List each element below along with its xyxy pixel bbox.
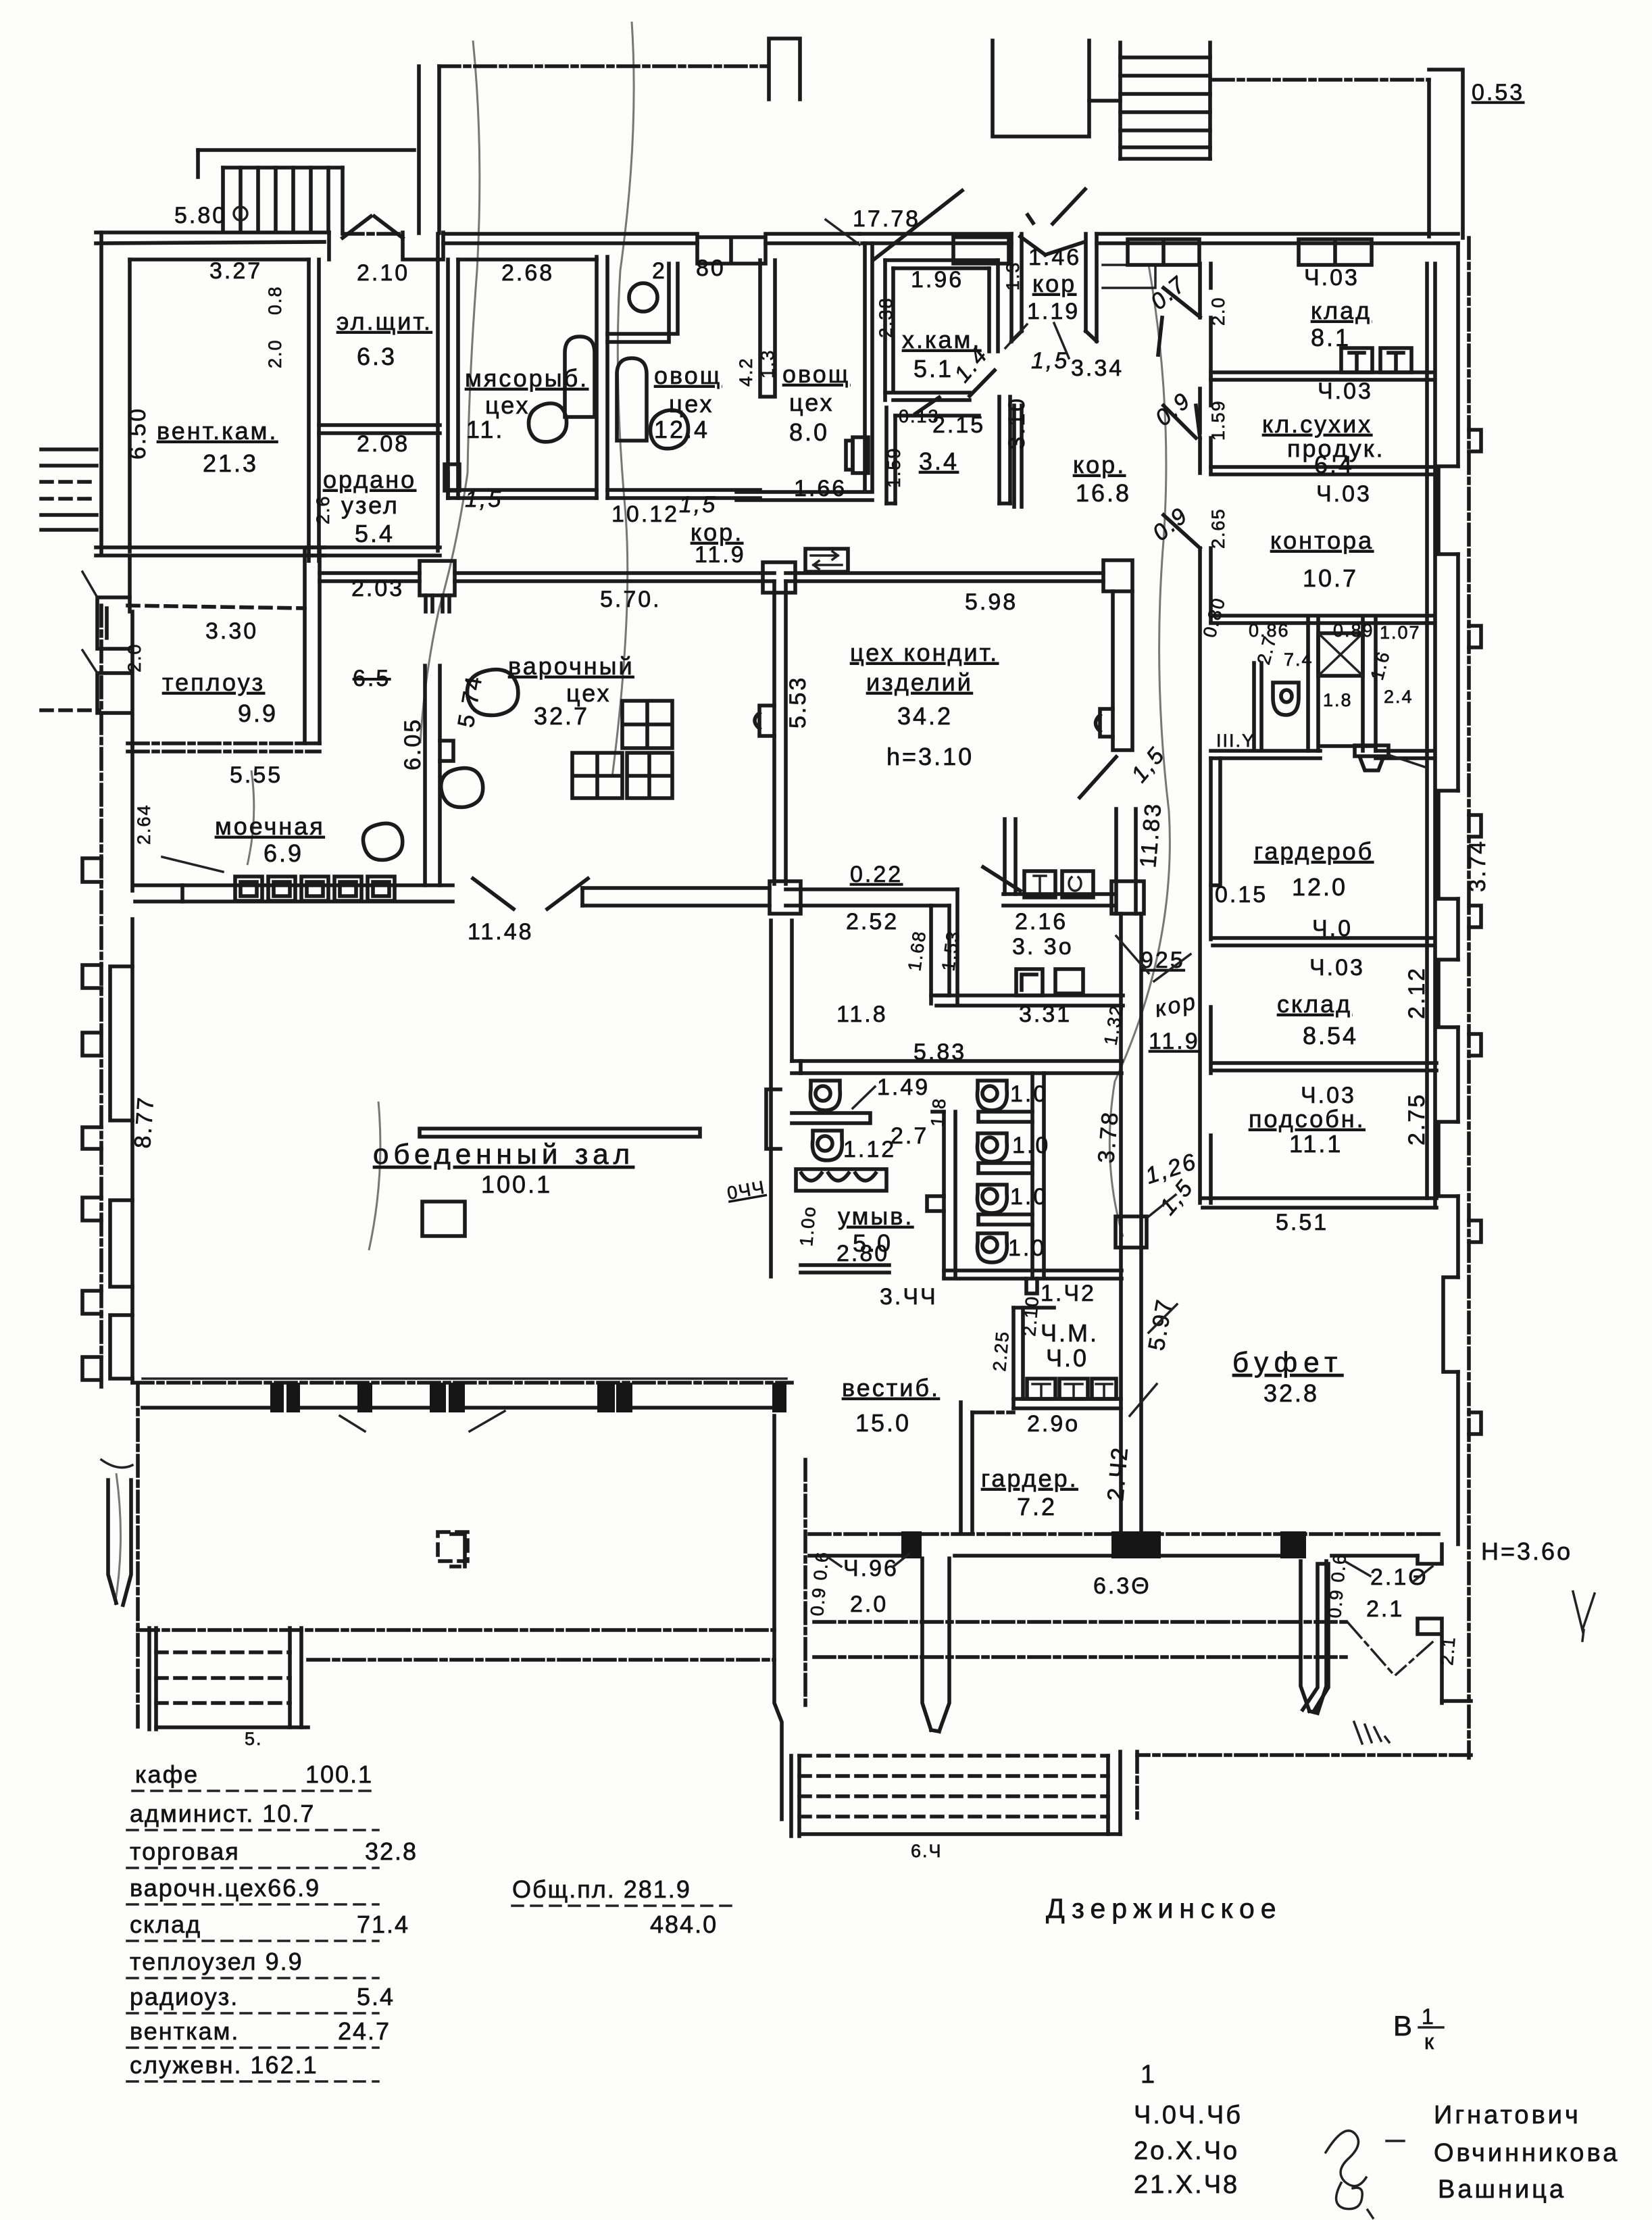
svg-text:торговая: торговая bbox=[130, 1837, 240, 1865]
svg-text:к: к bbox=[1424, 2029, 1434, 2054]
svg-text:3.34: 3.34 bbox=[1071, 355, 1124, 381]
svg-text:3.31: 3.31 bbox=[1019, 1002, 1072, 1027]
svg-text:5.4: 5.4 bbox=[355, 520, 395, 547]
svg-text:11.: 11. bbox=[466, 416, 504, 443]
svg-text:гардер.: гардер. bbox=[981, 1464, 1078, 1492]
svg-text:32.8: 32.8 bbox=[365, 1837, 418, 1865]
svg-text:овощ: овощ bbox=[782, 360, 850, 388]
svg-text:вент.кам.: вент.кам. bbox=[157, 417, 278, 445]
svg-text:1.07: 1.07 bbox=[1380, 622, 1421, 643]
svg-text:3.74: 3.74 bbox=[1465, 839, 1491, 892]
svg-text:1.0: 1.0 bbox=[1010, 1081, 1048, 1107]
svg-text:8.0: 8.0 bbox=[789, 418, 829, 446]
svg-text:кл.сухих: кл.сухих bbox=[1262, 410, 1372, 438]
svg-text:3.27: 3.27 bbox=[209, 258, 262, 284]
svg-text:1.59: 1.59 bbox=[884, 447, 904, 488]
svg-text:моечная: моечная bbox=[215, 812, 325, 840]
svg-text:2.10: 2.10 bbox=[357, 260, 409, 286]
svg-text:овощ: овощ bbox=[654, 362, 722, 389]
svg-text:21.3: 21.3 bbox=[203, 449, 258, 477]
svg-text:В: В bbox=[1393, 2010, 1412, 2042]
svg-text:3. 3o: 3. 3o bbox=[1012, 934, 1074, 960]
svg-text:подсобн.: подсобн. bbox=[1249, 1105, 1366, 1133]
svg-text:32.8: 32.8 bbox=[1263, 1379, 1319, 1407]
svg-text:Дзержинское: Дзержинское bbox=[1046, 1893, 1282, 1924]
svg-text:6.9: 6.9 bbox=[264, 839, 303, 867]
svg-text:Вашница: Вашница bbox=[1438, 2175, 1566, 2204]
svg-text:5.51: 5.51 bbox=[1276, 1210, 1328, 1235]
svg-text:кор.: кор. bbox=[1073, 451, 1126, 478]
svg-text:Ч.0Ч.Чб: Ч.0Ч.Чб bbox=[1134, 2101, 1243, 2129]
svg-text:цех: цех bbox=[669, 390, 714, 418]
svg-text:2.0: 2.0 bbox=[124, 643, 145, 672]
svg-text:склад: склад bbox=[130, 1910, 201, 1938]
svg-text:2.75: 2.75 bbox=[1404, 1093, 1430, 1145]
svg-text:Ч.0: Ч.0 bbox=[1312, 916, 1353, 941]
svg-text:7.2: 7.2 bbox=[1017, 1493, 1057, 1521]
svg-text:2.80: 2.80 bbox=[836, 1241, 889, 1266]
svg-text:2.4: 2.4 bbox=[1384, 687, 1413, 707]
svg-text:6.5: 6.5 bbox=[353, 666, 391, 691]
svg-text:3.ЧЧ: 3.ЧЧ bbox=[880, 1284, 938, 1310]
svg-text:6.3: 6.3 bbox=[357, 343, 397, 370]
svg-text:клад: клад bbox=[1311, 297, 1372, 324]
svg-text:6.50: 6.50 bbox=[125, 407, 151, 460]
svg-text:5.1: 5.1 bbox=[913, 355, 953, 383]
svg-text:2.38: 2.38 bbox=[876, 297, 896, 338]
svg-text:2.03: 2.03 bbox=[351, 576, 404, 601]
svg-text:9.9: 9.9 bbox=[238, 699, 278, 727]
svg-text:1.49: 1.49 bbox=[877, 1075, 930, 1100]
svg-text:3.30: 3.30 bbox=[205, 618, 258, 644]
svg-text:кор: кор bbox=[1032, 270, 1076, 297]
svg-text:0.53: 0.53 bbox=[1472, 80, 1524, 105]
svg-text:10.7: 10.7 bbox=[1303, 564, 1358, 592]
svg-text:Ч.03: Ч.03 bbox=[1316, 481, 1372, 507]
svg-text:2.16: 2.16 bbox=[1015, 909, 1068, 935]
svg-text:1.19: 1.19 bbox=[1027, 299, 1080, 324]
svg-text:8.77: 8.77 bbox=[130, 1095, 159, 1150]
svg-text:1.96: 1.96 bbox=[911, 267, 963, 293]
svg-text:Общ.пл. 281.9: Общ.пл. 281.9 bbox=[512, 1875, 691, 1903]
svg-text:11.9: 11.9 bbox=[1149, 1029, 1200, 1054]
svg-text:h=3.10: h=3.10 bbox=[886, 743, 974, 770]
svg-text:11.8: 11.8 bbox=[836, 1002, 888, 1027]
svg-text:2.0: 2.0 bbox=[850, 1592, 888, 1617]
svg-text:12.0: 12.0 bbox=[1292, 873, 1347, 901]
svg-text:3.4: 3.4 bbox=[919, 447, 959, 475]
svg-text:1.0: 1.0 bbox=[1008, 1235, 1046, 1261]
svg-text:Ч.03: Ч.03 bbox=[1304, 265, 1359, 291]
svg-text:2.0: 2.0 bbox=[1208, 296, 1228, 326]
svg-text:служевн. 162.1: служевн. 162.1 bbox=[130, 2051, 318, 2079]
svg-text:484.0: 484.0 bbox=[650, 1910, 718, 1938]
svg-text:0.8: 0.8 bbox=[265, 285, 285, 315]
svg-text:склад: склад bbox=[1277, 990, 1352, 1018]
svg-text:11.48: 11.48 bbox=[468, 919, 534, 945]
svg-text:2.68: 2.68 bbox=[501, 260, 554, 286]
svg-text:Ч.96: Ч.96 bbox=[843, 1556, 899, 1581]
svg-text:мясорыб.: мясорыб. bbox=[465, 364, 589, 392]
svg-text:2.1: 2.1 bbox=[1366, 1596, 1404, 1622]
svg-text:теплоузел 9.9: теплоузел 9.9 bbox=[130, 1948, 303, 1975]
svg-text:4.2: 4.2 bbox=[736, 357, 756, 387]
svg-text:24.7: 24.7 bbox=[338, 2017, 391, 2045]
svg-text:11.9: 11.9 bbox=[695, 542, 746, 568]
svg-text:радиоуз.: радиоуз. bbox=[130, 1983, 239, 2011]
svg-text:2.64: 2.64 bbox=[134, 804, 154, 845]
svg-text:умыв.: умыв. bbox=[838, 1202, 913, 1230]
svg-text:2о.Х.Чо: 2о.Х.Чо bbox=[1134, 2137, 1239, 2165]
svg-text:12.4: 12.4 bbox=[654, 416, 709, 443]
svg-text:цех: цех bbox=[485, 391, 530, 419]
svg-text:1,5: 1,5 bbox=[465, 487, 503, 512]
svg-text:2.7: 2.7 bbox=[891, 1123, 928, 1149]
svg-text:1,5: 1,5 bbox=[1031, 348, 1069, 374]
svg-text:10.12: 10.12 bbox=[611, 501, 679, 527]
svg-text:Овчинникова: Овчинникова bbox=[1434, 2139, 1620, 2167]
svg-text:буфет: буфет bbox=[1232, 1346, 1343, 1378]
svg-text:1.3: 1.3 bbox=[1003, 261, 1023, 291]
svg-text:Ч.М.: Ч.М. bbox=[1041, 1319, 1099, 1347]
svg-text:теплоуз: теплоуз bbox=[162, 668, 265, 696]
svg-text:1.0: 1.0 bbox=[1010, 1184, 1048, 1210]
svg-text:2.15: 2.15 bbox=[932, 412, 985, 438]
svg-text:80: 80 bbox=[696, 255, 726, 281]
svg-text:1: 1 bbox=[1422, 2004, 1434, 2029]
svg-text:1.66: 1.66 bbox=[794, 476, 847, 501]
svg-text:5.80: 5.80 bbox=[174, 203, 227, 228]
svg-text:1,5: 1,5 bbox=[679, 492, 717, 518]
svg-text:2.10: 2.10 bbox=[1019, 1295, 1043, 1337]
svg-text:Игнатович: Игнатович bbox=[1434, 2101, 1581, 2129]
svg-text:кафе: кафе bbox=[135, 1760, 199, 1788]
svg-text:2.9o: 2.9o bbox=[1027, 1411, 1080, 1437]
svg-text:3.78: 3.78 bbox=[1093, 1109, 1124, 1164]
svg-text:1.Ч2: 1.Ч2 bbox=[1041, 1281, 1096, 1306]
svg-text:2.1: 2.1 bbox=[1436, 1635, 1459, 1667]
svg-text:2.65: 2.65 bbox=[1208, 508, 1228, 549]
svg-text:1.0: 1.0 bbox=[1012, 1133, 1050, 1158]
svg-text:0.89: 0.89 bbox=[1333, 620, 1374, 641]
svg-text:17.78: 17.78 bbox=[853, 206, 920, 232]
svg-text:узел: узел bbox=[341, 491, 399, 519]
svg-text:1.0o: 1.0o bbox=[796, 1205, 820, 1248]
svg-text:16.8: 16.8 bbox=[1076, 479, 1131, 507]
svg-text:1.3: 1.3 bbox=[757, 349, 778, 378]
svg-text:2.12: 2.12 bbox=[1404, 966, 1430, 1019]
svg-text:1.46: 1.46 bbox=[1028, 245, 1081, 270]
svg-text:2.0: 2.0 bbox=[265, 339, 285, 368]
svg-text:6.05: 6.05 bbox=[400, 718, 426, 770]
svg-text:5.55: 5.55 bbox=[230, 762, 282, 788]
svg-text:1.12: 1.12 bbox=[843, 1137, 896, 1162]
svg-text:2: 2 bbox=[652, 258, 667, 284]
svg-text:5.83: 5.83 bbox=[913, 1039, 966, 1065]
svg-text:5.53: 5.53 bbox=[785, 676, 811, 729]
svg-text:5.4: 5.4 bbox=[357, 1983, 395, 2011]
svg-text:вестиб.: вестиб. bbox=[842, 1374, 940, 1402]
svg-text:венткам.: венткам. bbox=[130, 2017, 239, 2045]
svg-text:5.70.: 5.70. bbox=[600, 587, 661, 612]
svg-text:5.: 5. bbox=[245, 1729, 263, 1749]
svg-text:2.6: 2.6 bbox=[313, 495, 333, 524]
svg-text:8.1: 8.1 bbox=[1311, 324, 1351, 351]
svg-text:Ч.03: Ч.03 bbox=[1318, 378, 1373, 404]
svg-text:цех: цех bbox=[789, 389, 834, 416]
svg-text:III.Y: III.Y bbox=[1216, 731, 1255, 751]
svg-text:Ч.0: Ч.0 bbox=[1046, 1344, 1088, 1372]
svg-text:админист. 10.7: админист. 10.7 bbox=[130, 1800, 315, 1827]
svg-text:21.Х.Ч8: 21.Х.Ч8 bbox=[1134, 2171, 1239, 2199]
svg-text:6.3Θ: 6.3Θ bbox=[1093, 1573, 1151, 1599]
svg-text:34.2: 34.2 bbox=[897, 702, 953, 730]
svg-text:эл.щит.: эл.щит. bbox=[336, 307, 432, 335]
svg-text:варочн.цех66.9: варочн.цех66.9 bbox=[130, 1874, 320, 1902]
svg-text:Н=3.6о: Н=3.6о bbox=[1481, 1537, 1572, 1565]
svg-text:100.1: 100.1 bbox=[305, 1760, 373, 1788]
svg-text:6.4: 6.4 bbox=[1314, 451, 1354, 478]
svg-text:6.Ч: 6.Ч bbox=[911, 1841, 943, 1861]
svg-text:0.22: 0.22 bbox=[850, 862, 903, 887]
svg-text:1.8: 1.8 bbox=[927, 1097, 950, 1128]
svg-text:варочный: варочный bbox=[508, 652, 634, 680]
svg-text:1.8: 1.8 bbox=[1323, 690, 1353, 710]
svg-text:2.52: 2.52 bbox=[846, 909, 899, 935]
svg-text:5.98: 5.98 bbox=[965, 589, 1018, 615]
svg-text:гардероб: гардероб bbox=[1254, 837, 1374, 865]
svg-text:11.1: 11.1 bbox=[1289, 1130, 1343, 1158]
svg-text:71.4: 71.4 bbox=[357, 1910, 409, 1938]
svg-text:7.4: 7.4 bbox=[1284, 649, 1313, 670]
svg-text:15.0: 15.0 bbox=[855, 1409, 911, 1437]
svg-text:изделий: изделий bbox=[866, 668, 973, 696]
svg-text:контора: контора bbox=[1270, 526, 1374, 554]
svg-text:1: 1 bbox=[1141, 2061, 1155, 2089]
svg-text:2.25: 2.25 bbox=[989, 1330, 1013, 1373]
svg-text:100.1: 100.1 bbox=[481, 1170, 552, 1198]
svg-text:цех кондит.: цех кондит. bbox=[850, 639, 999, 666]
svg-text:8.54: 8.54 bbox=[1303, 1022, 1358, 1050]
svg-text:0.15: 0.15 bbox=[1215, 882, 1268, 908]
svg-text:ордано: ордано bbox=[323, 466, 416, 493]
svg-text:обеденный зал: обеденный зал bbox=[373, 1138, 634, 1170]
svg-text:3.10: 3.10 bbox=[1004, 397, 1030, 449]
svg-text:1.59: 1.59 bbox=[1208, 399, 1228, 441]
svg-text:925: 925 bbox=[1141, 947, 1185, 973]
svg-text:2.Ч2: 2.Ч2 bbox=[1103, 1445, 1133, 1502]
svg-text:Ч.03: Ч.03 bbox=[1309, 955, 1365, 981]
svg-text:2.08: 2.08 bbox=[357, 431, 409, 457]
svg-text:32.7: 32.7 bbox=[534, 702, 589, 730]
